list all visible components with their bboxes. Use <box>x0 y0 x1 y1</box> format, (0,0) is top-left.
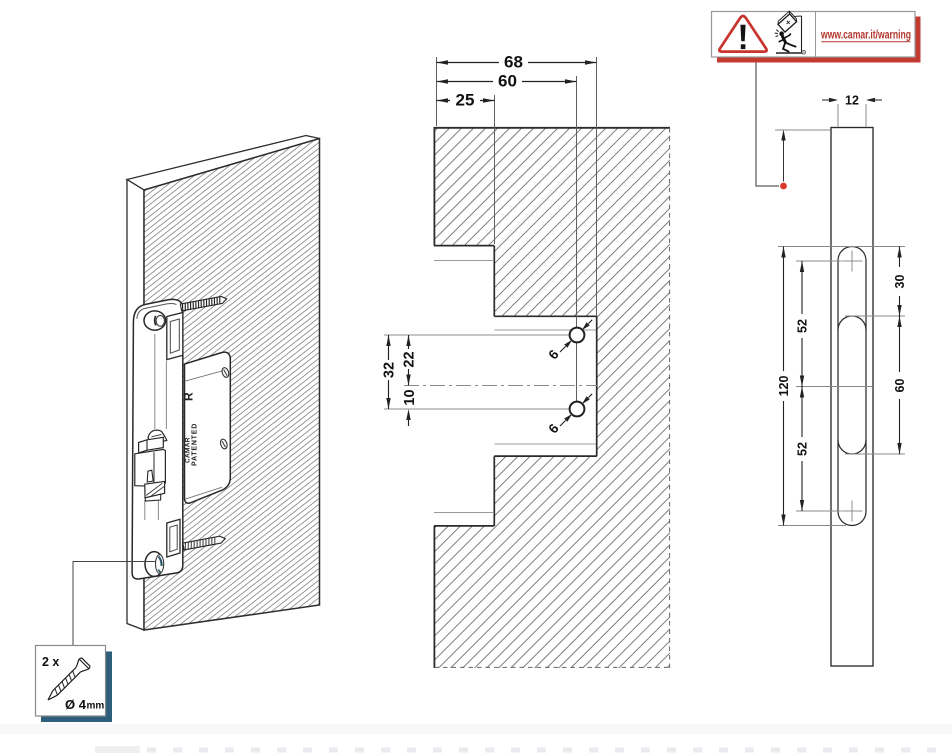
svg-text:12: 12 <box>845 94 859 108</box>
svg-text:CAMAR: CAMAR <box>185 437 192 463</box>
svg-text:2 x: 2 x <box>42 655 59 669</box>
svg-text:52: 52 <box>796 442 810 456</box>
svg-text:22: 22 <box>402 351 418 367</box>
svg-text:52: 52 <box>796 319 810 333</box>
svg-text:mm: mm <box>87 701 105 712</box>
svg-text:32: 32 <box>382 362 398 378</box>
svg-text:Ø 4: Ø 4 <box>65 697 87 712</box>
svg-text:68: 68 <box>504 53 523 72</box>
svg-text:www.camar.it/warning: www.camar.it/warning <box>820 30 911 42</box>
svg-text:60: 60 <box>498 72 517 91</box>
svg-text:PATENTED: PATENTED <box>192 423 199 466</box>
svg-text:25: 25 <box>456 91 475 110</box>
svg-text:30: 30 <box>893 275 907 289</box>
svg-text:60: 60 <box>893 379 907 393</box>
svg-text:10: 10 <box>402 389 418 405</box>
svg-text:120: 120 <box>777 376 791 397</box>
svg-text:R: R <box>182 392 196 401</box>
